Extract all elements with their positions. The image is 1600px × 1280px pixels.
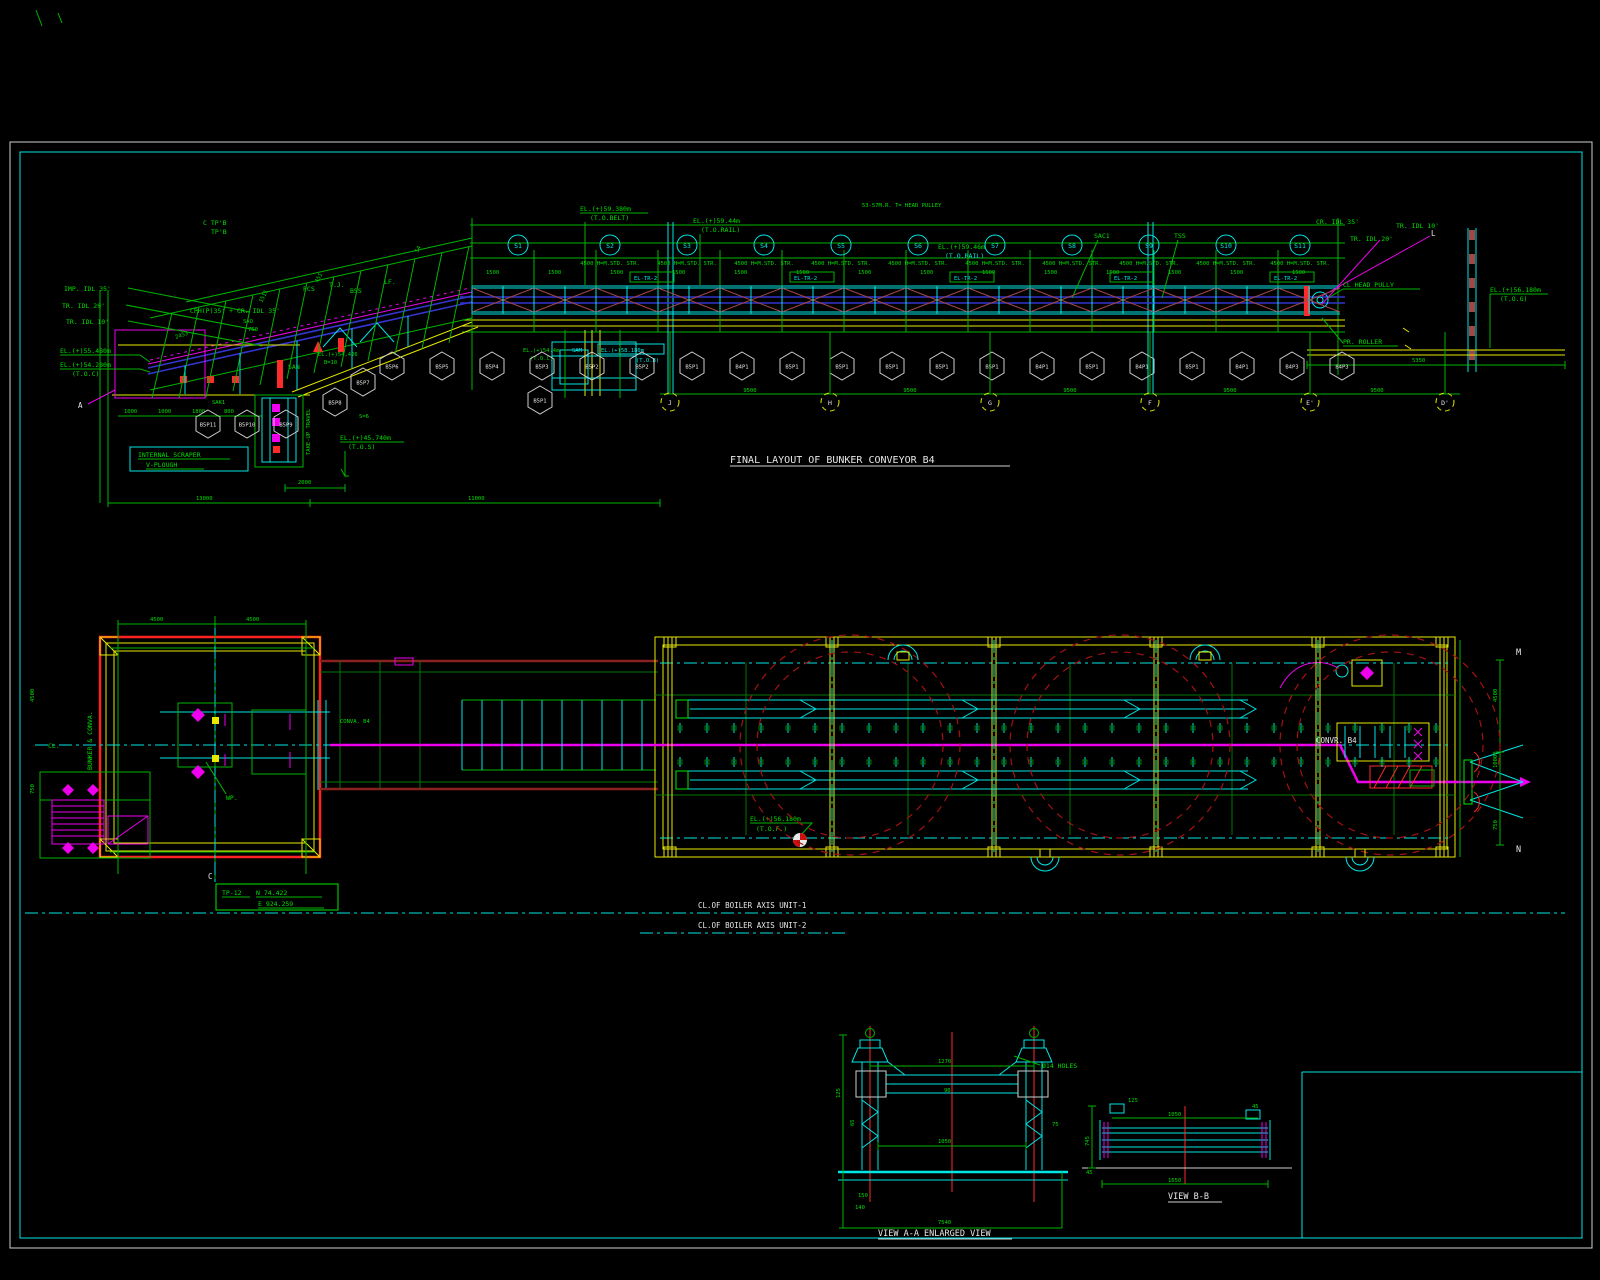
label-sam: SAM bbox=[572, 348, 583, 354]
floor-anchor bbox=[1346, 857, 1374, 871]
label-conva-b4: CONVA. B4 bbox=[340, 719, 370, 725]
dim-aa-mid: 1050 bbox=[938, 1139, 951, 1145]
tower-corner-columns bbox=[100, 637, 320, 857]
dim-bb-c2: 45 bbox=[1252, 1104, 1259, 1110]
hall-column bbox=[668, 637, 672, 857]
std-str-label: 4500 H=M.STD. STR. bbox=[965, 261, 1025, 267]
hall-column bbox=[1440, 637, 1444, 857]
dim-bb-l2: 45 bbox=[1086, 1170, 1093, 1176]
dim-aa-top: 1270 bbox=[938, 1059, 951, 1065]
hex-marker-label: B5P1 bbox=[835, 365, 848, 371]
panel-dim: 1500 bbox=[486, 270, 499, 276]
vent-dome-base bbox=[897, 652, 909, 660]
label-to-rail: (T.O.RAIL) bbox=[701, 226, 740, 234]
hex-marker-label: B5P8 bbox=[328, 401, 341, 407]
hex-marker-label: B5P1 bbox=[935, 365, 948, 371]
hex-marker-label: B5P1 bbox=[533, 399, 546, 405]
label-cph: CPH(P)35' + CR. IDL 35' bbox=[190, 307, 280, 315]
el-tr-label: EL-TR-2 bbox=[1274, 276, 1297, 282]
label-lf: LF. bbox=[384, 278, 396, 286]
incline-bent bbox=[314, 276, 334, 372]
dim-11000: 11000 bbox=[468, 496, 485, 502]
hex-marker-label: B4P1 bbox=[1235, 365, 1248, 371]
bay-dim: 9500 bbox=[1223, 388, 1236, 394]
label-toc: (T.O.C) bbox=[72, 370, 99, 378]
label-tpb: TP'B bbox=[211, 228, 227, 236]
std-str-label: 4500 H=M.STD. STR. bbox=[1119, 261, 1179, 267]
drawing-title: FINAL LAYOUT OF BUNKER CONVEYOR B4 bbox=[730, 455, 935, 466]
dim-aa-l2: 65 bbox=[850, 1119, 856, 1126]
panel-dim: 1500 bbox=[734, 270, 747, 276]
incline-bent bbox=[395, 258, 415, 354]
dim-incline-3: 451 bbox=[314, 272, 324, 284]
dim-tower-2: 4500 bbox=[246, 617, 259, 623]
generated-geometry: 1500150015001500150015001500150015001500… bbox=[152, 235, 1500, 871]
dim-bb-bottom: 1650 bbox=[1168, 1178, 1181, 1184]
label-wp: WP. bbox=[226, 794, 238, 802]
hex-marker-label: B5P5 bbox=[435, 365, 448, 371]
bay-dim: 9500 bbox=[743, 388, 756, 394]
dim-incline-4: 54 bbox=[414, 245, 423, 254]
label-el-544: EL.(+)54.4m bbox=[523, 348, 560, 354]
incline-bent bbox=[206, 301, 226, 397]
grid-bubble-label: S1 bbox=[514, 242, 522, 250]
std-str-label: 4500 H=M.STD. STR. bbox=[657, 261, 717, 267]
cad-canvas: A INTERNAL SCRAPER V-PLOUGH 2000 13000 1… bbox=[0, 0, 1600, 1280]
label-boiler-axis-1: CL.OF BOILER AXIS UNIT-1 bbox=[698, 901, 806, 910]
dim-2000: 2000 bbox=[298, 480, 311, 486]
incline-bent bbox=[449, 246, 469, 342]
label-tr-idl-10r: TR. IDL 10' bbox=[1396, 222, 1439, 230]
view-aa: 1270 90 1050 125 65 75 150 140 7540 Ø14 … bbox=[836, 1026, 1077, 1239]
hex-marker-label: B5P9 bbox=[279, 423, 292, 429]
vent-dome-base bbox=[1199, 652, 1211, 660]
std-str-label: 4500 H=M.STD. STR. bbox=[811, 261, 871, 267]
hex-marker-label: B4P1 bbox=[735, 365, 748, 371]
dim-row-3: 1800 bbox=[192, 409, 205, 415]
hex-marker-label: B5P4 bbox=[485, 365, 499, 371]
plan-view: 4500 4500 4500 750 WP. CL. BUNKER & CONV… bbox=[25, 616, 1565, 933]
grid-letter-n: N bbox=[1516, 845, 1521, 855]
grid-letter: E' bbox=[1306, 399, 1314, 407]
dim-aa-b1: 150 bbox=[858, 1193, 868, 1199]
hex-marker-label: B5P1 bbox=[1085, 365, 1098, 371]
grid-letter: J bbox=[668, 399, 672, 407]
dim-aa-overall: 7540 bbox=[938, 1220, 951, 1226]
label-take-up: TAKE-UP TRAVEL bbox=[306, 408, 312, 455]
grid-letter: H bbox=[828, 399, 832, 407]
label-el-56180-tof: EL.(+)56.180m bbox=[750, 815, 801, 823]
caption-view-aa: VIEW A-A ENLARGED VIEW bbox=[878, 1229, 991, 1239]
grid-letter-m: M bbox=[1516, 648, 1521, 658]
panel-dim: 1500 bbox=[858, 270, 871, 276]
caption-view-bb: VIEW B-B bbox=[1168, 1192, 1209, 1202]
label-ctp: C TP'B bbox=[203, 219, 227, 227]
dim-tower-left-2: 750 bbox=[30, 784, 36, 794]
grid-bubble-label: S11 bbox=[1294, 242, 1306, 250]
panel-dim: 1500 bbox=[920, 270, 933, 276]
section-a-mark: A bbox=[78, 401, 83, 410]
std-str-label: 4500 H=M.STD. STR. bbox=[1196, 261, 1256, 267]
hex-marker-label: B4P1 bbox=[1035, 365, 1048, 371]
label-tr-idl-20r: TR. IDL 20' bbox=[1350, 235, 1393, 243]
dim-aa-b2: 140 bbox=[855, 1205, 865, 1211]
grid-bubble-label: S4 bbox=[760, 242, 768, 250]
grid-letter: G bbox=[988, 399, 992, 407]
hex-marker-label: B4P3 bbox=[1335, 365, 1348, 371]
grid-bubble-label: S10 bbox=[1220, 242, 1232, 250]
label-imp-idl: IMP. IDL 35' bbox=[64, 285, 111, 293]
grid-bubble-label: S7 bbox=[991, 242, 999, 250]
incline-bent bbox=[152, 313, 172, 398]
grid-letter: F bbox=[1148, 399, 1152, 407]
label-el-59380: EL.(+)59.380m bbox=[580, 205, 631, 213]
label-el-58180: EL.(+)58.180m bbox=[601, 348, 645, 354]
label-to-belt: (T.O.BELT) bbox=[590, 214, 629, 222]
label-sac1: SAC1 bbox=[1094, 232, 1110, 240]
floor-anchor-base bbox=[1040, 849, 1050, 857]
label-750: 750 bbox=[248, 327, 258, 333]
view-bb: 1050 745 45 125 45 1650 VIEW B-B bbox=[1082, 1098, 1292, 1202]
label-boiler-axis-2: CL.OF BOILER AXIS UNIT-2 bbox=[698, 921, 806, 930]
hex-marker-label: B4P1 bbox=[1135, 365, 1148, 371]
label-head-note: 53-57M.R. T= HEAD PULLEY bbox=[862, 203, 942, 209]
el-tr-label: EL-TR-2 bbox=[1114, 276, 1137, 282]
grid-bubble-label: S2 bbox=[606, 242, 614, 250]
floor-anchor bbox=[1031, 857, 1059, 871]
hex-marker-label: B5P1 bbox=[685, 365, 698, 371]
hex-marker-label: B5P3 bbox=[535, 365, 548, 371]
label-tog: (T.O.G) bbox=[1500, 295, 1527, 303]
panel-dim: 1500 bbox=[1168, 270, 1181, 276]
label-el-56180-tog: EL.(+)56.180m bbox=[1490, 286, 1541, 294]
dim-tower-1: 4500 bbox=[150, 617, 163, 623]
label-tr-idl-10: TR. IDL 10' bbox=[66, 318, 109, 326]
label-tof: (T.O.F.) bbox=[756, 825, 787, 833]
panel-dim: 1500 bbox=[1044, 270, 1057, 276]
dim-13000: 13000 bbox=[196, 496, 213, 502]
grid-bubble-label: S3 bbox=[683, 242, 691, 250]
panel-dim: 1500 bbox=[548, 270, 561, 276]
label-northing: N 74.422 bbox=[256, 889, 287, 897]
dim-bb-top: 1050 bbox=[1168, 1112, 1181, 1118]
dim-tower-left-1: 4500 bbox=[30, 689, 36, 702]
bay-dim: 9500 bbox=[1370, 388, 1383, 394]
label-cl: CL. bbox=[48, 742, 60, 750]
dim-bb-l1: 745 bbox=[1085, 1136, 1091, 1146]
std-str-label: 4500 H=M.STD. STR. bbox=[1042, 261, 1102, 267]
dim-bb-c1: 125 bbox=[1128, 1098, 1138, 1104]
dim-row-2: 1000 bbox=[158, 409, 171, 415]
label-tob: (T.O.B) bbox=[636, 358, 659, 364]
el-tr-label: EL-TR-2 bbox=[634, 276, 657, 282]
std-str-label: 4500 H=M.STD. STR. bbox=[888, 261, 948, 267]
label-s6: S=6 bbox=[359, 414, 369, 420]
hex-marker-label: B5P6 bbox=[385, 365, 398, 371]
label-b10: B=10 bbox=[324, 360, 337, 366]
dim-row-1: 1000 bbox=[124, 409, 137, 415]
dim-5350: 5350 bbox=[1412, 358, 1425, 364]
label-el-55480: EL.(+)55.480m bbox=[60, 347, 111, 355]
dim-hall-right-1: 4500 bbox=[1493, 689, 1499, 702]
incline-bent bbox=[368, 264, 388, 360]
label-el-54280: EL.(+)54.280m bbox=[60, 361, 111, 369]
label-tp12: TP-12 bbox=[222, 889, 242, 897]
grid-bubble-label: S8 bbox=[1068, 242, 1076, 250]
panel-dim: 1500 bbox=[610, 270, 623, 276]
scraper-label-2: V-PLOUGH bbox=[146, 461, 177, 469]
hex-marker-label: B5P2 bbox=[635, 365, 648, 371]
dim-aa-l1: 125 bbox=[836, 1088, 842, 1098]
el-tr-label: EL-TR-2 bbox=[794, 276, 817, 282]
scraper-label-1: INTERNAL SCRAPER bbox=[138, 451, 201, 459]
panel-dim: 1500 bbox=[1230, 270, 1243, 276]
label-pr-roller: PR. ROLLER bbox=[1343, 338, 1382, 346]
stray-marks bbox=[36, 10, 62, 26]
dim-incline-1: 2453 bbox=[175, 331, 190, 341]
label-tss: TSS bbox=[1174, 232, 1186, 240]
label-bunker-conva: BUNKER & CONVA. bbox=[86, 711, 94, 770]
incline-bent bbox=[422, 252, 442, 348]
panel-dim: 1500 bbox=[982, 270, 995, 276]
dim-row-4: 800 bbox=[224, 409, 234, 415]
grid-bubble-label: S6 bbox=[914, 242, 922, 250]
grid-bubble-label: S5 bbox=[837, 242, 845, 250]
label-convr-b4: CONVR. B4 bbox=[1316, 736, 1357, 745]
label-cr-idl-35: CR. IDL 35' bbox=[1316, 218, 1359, 226]
dim-hall-right-3: 750 bbox=[1493, 820, 1499, 830]
hex-marker-label: B5P2 bbox=[585, 365, 598, 371]
bay-dim: 9500 bbox=[1063, 388, 1076, 394]
std-str-label: 4500 H=M.STD. STR. bbox=[1270, 261, 1330, 267]
hex-marker-label: B5P1 bbox=[985, 365, 998, 371]
hex-marker-label: B5P10 bbox=[239, 423, 256, 429]
floor-anchor-base bbox=[1355, 849, 1365, 857]
grid-letter: D' bbox=[1441, 399, 1449, 407]
std-str-label: 4500 H=M.STD. STR. bbox=[580, 261, 640, 267]
bay-dim: 9500 bbox=[903, 388, 916, 394]
hex-marker-label: B5P7 bbox=[356, 381, 369, 387]
hex-marker-label: B5P1 bbox=[885, 365, 898, 371]
hex-marker-label: B5P1 bbox=[1185, 365, 1198, 371]
sheet-border bbox=[10, 10, 1592, 1248]
section-l-mark: L bbox=[1431, 229, 1436, 238]
dim-aa-beam: 90 bbox=[944, 1088, 951, 1094]
std-str-label: 4500 H=M.STD. STR. bbox=[734, 261, 794, 267]
label-cl-head-pully: CL HEAD PULLY bbox=[1343, 281, 1394, 289]
label-el-5944: EL.(+)59.44m bbox=[693, 217, 740, 225]
grid-letter-c: C bbox=[208, 872, 213, 881]
dim-hall-right-2: 10000 bbox=[1493, 751, 1499, 768]
incline-bent bbox=[179, 307, 199, 398]
label-easting: E 924.259 bbox=[258, 900, 293, 908]
label-sak: SAK1 bbox=[212, 400, 225, 406]
label-el-45740: EL.(+)45.740m bbox=[340, 434, 391, 442]
label-to-rail-2: (T.O.RAIL) bbox=[945, 252, 984, 260]
elevation-view: A INTERNAL SCRAPER V-PLOUGH 2000 13000 1… bbox=[60, 203, 1565, 507]
label-tr-idl-20: TR. IDL 20' bbox=[62, 302, 105, 310]
label-el-5946: EL.(+)59.46m bbox=[938, 243, 985, 251]
dim-aa-r1: 75 bbox=[1052, 1122, 1059, 1128]
hex-marker-label: B4P3 bbox=[1285, 365, 1298, 371]
hex-marker-label: B5P11 bbox=[200, 423, 217, 429]
label-holes: Ø14 HOLES bbox=[1042, 1062, 1077, 1070]
grid-bubble-label: S9 bbox=[1145, 242, 1153, 250]
dim-incline-2: 1511 bbox=[258, 289, 269, 304]
hex-marker-label: B5P1 bbox=[785, 365, 798, 371]
el-tr-label: EL-TR-2 bbox=[954, 276, 977, 282]
label-tos: (T.O.S) bbox=[348, 443, 375, 451]
